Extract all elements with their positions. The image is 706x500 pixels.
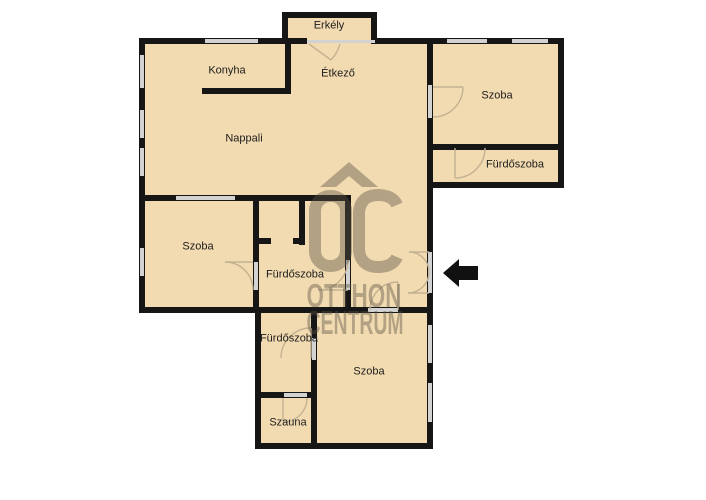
room-label-szauna: Szauna (269, 418, 306, 429)
entrance-arrow-icon (443, 259, 478, 287)
floor-plan-canvas: Erkély Konyha Étkező Szoba Fürdőszoba Na… (0, 0, 706, 500)
room-label-konyha: Konyha (208, 66, 245, 77)
room-label-furdoszoba-top-right: Fürdőszoba (486, 160, 544, 171)
room-label-szoba-top-right: Szoba (481, 91, 512, 102)
room-label-erkely: Erkély (314, 21, 345, 32)
room-label-furdoszoba-middle: Fürdőszoba (266, 270, 324, 281)
room-label-szoba-left: Szoba (182, 242, 213, 253)
room-label-etkezo: Étkező (321, 69, 355, 80)
room-label-szoba-bottom: Szoba (353, 367, 384, 378)
room-label-furdoszoba-bottom: Fürdőszoba (260, 334, 318, 345)
room-label-nappali: Nappali (225, 134, 262, 145)
